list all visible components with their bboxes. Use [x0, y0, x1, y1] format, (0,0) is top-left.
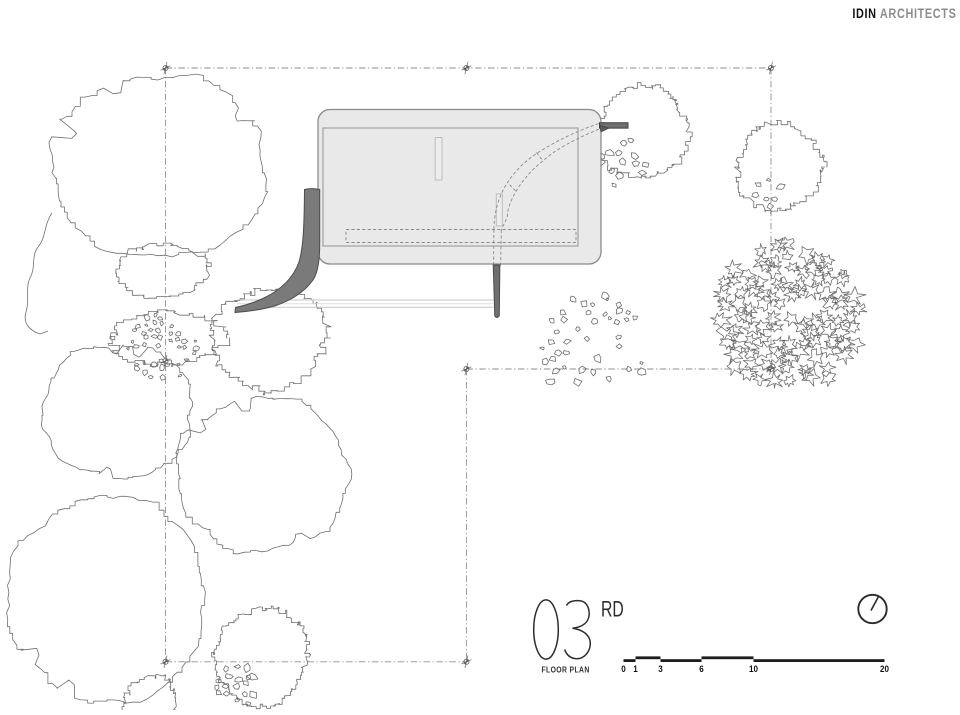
- svg-text:IDIN ARCHITECTS: IDIN ARCHITECTS: [852, 6, 956, 22]
- svg-text:10: 10: [749, 663, 758, 674]
- svg-text:3: 3: [658, 663, 663, 674]
- svg-text:RD: RD: [601, 597, 624, 622]
- svg-text:FLOOR PLAN: FLOOR PLAN: [542, 665, 590, 675]
- svg-text:20: 20: [880, 663, 889, 674]
- svg-text:0: 0: [621, 663, 626, 674]
- svg-text:6: 6: [699, 663, 704, 674]
- svg-text:1: 1: [633, 663, 638, 674]
